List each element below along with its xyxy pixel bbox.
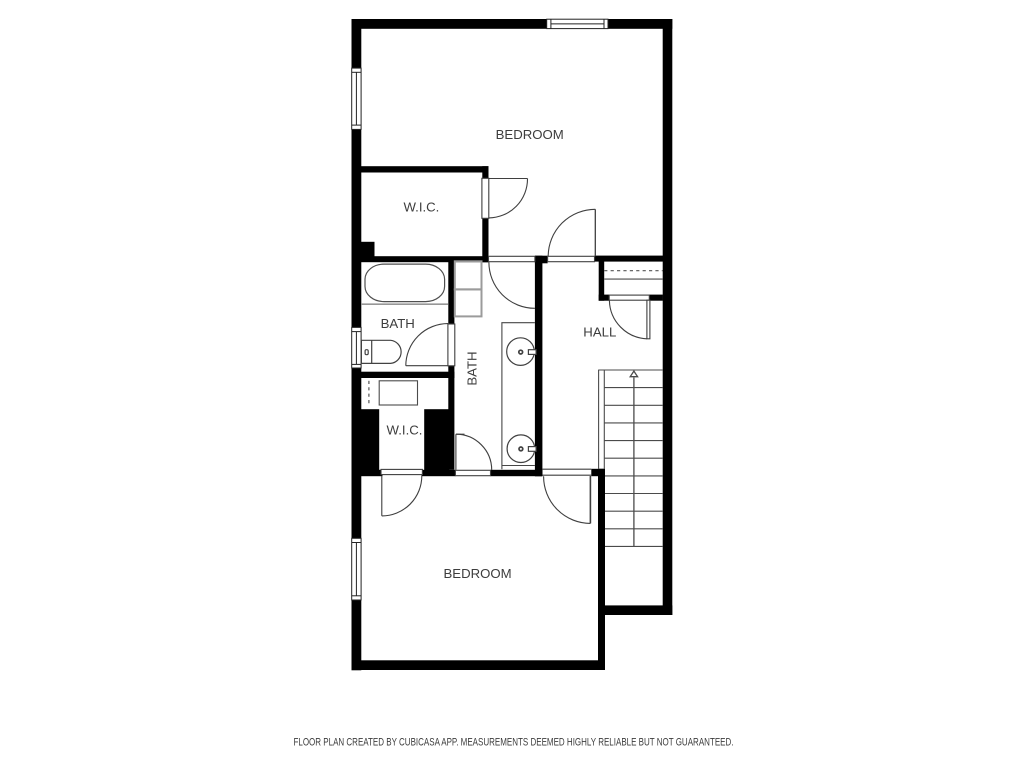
svg-text:BATH: BATH (381, 316, 415, 331)
svg-text:BATH: BATH (464, 351, 479, 385)
svg-text:W.I.C.: W.I.C. (387, 423, 423, 438)
svg-text:W.I.C.: W.I.C. (403, 199, 439, 214)
svg-text:BEDROOM: BEDROOM (496, 127, 564, 142)
svg-text:HALL: HALL (583, 324, 616, 339)
svg-text:FLOOR PLAN CREATED BY CUBICASA: FLOOR PLAN CREATED BY CUBICASA APP. MEAS… (294, 737, 734, 749)
svg-text:BEDROOM: BEDROOM (444, 566, 512, 581)
